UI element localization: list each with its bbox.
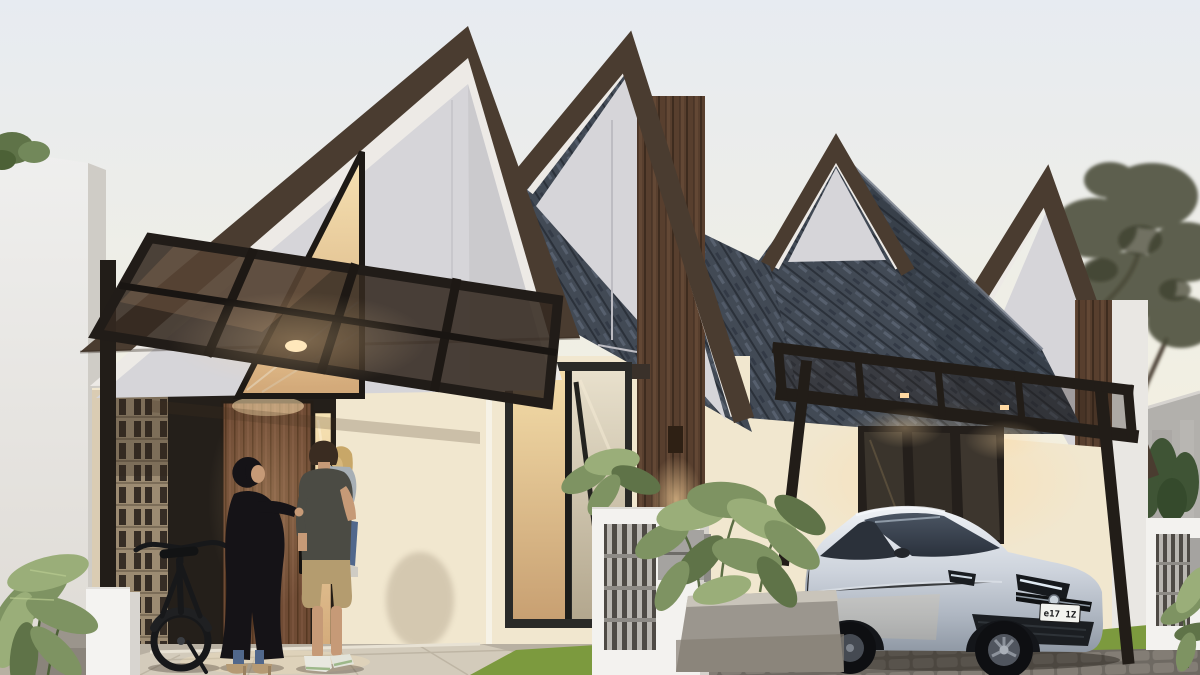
license-plate: e17 1Z xyxy=(1040,603,1081,623)
license-plate-text: e17 1Z xyxy=(1043,609,1077,621)
woman-face xyxy=(251,465,265,483)
house2-sconce xyxy=(668,426,683,453)
woman-hand xyxy=(295,508,304,517)
canopy-downlight xyxy=(285,340,307,352)
side-mirror xyxy=(894,548,910,558)
architectural-render: e17 1Z xyxy=(0,0,1200,675)
scene-svg: e17 1Z xyxy=(0,0,1200,675)
bicycle-saddle xyxy=(164,551,194,554)
man-leg xyxy=(312,606,323,658)
man-leg2 xyxy=(331,606,342,656)
wall-shadow xyxy=(386,552,454,648)
woman-jeans xyxy=(233,650,244,664)
canopy-underglow xyxy=(168,292,428,388)
